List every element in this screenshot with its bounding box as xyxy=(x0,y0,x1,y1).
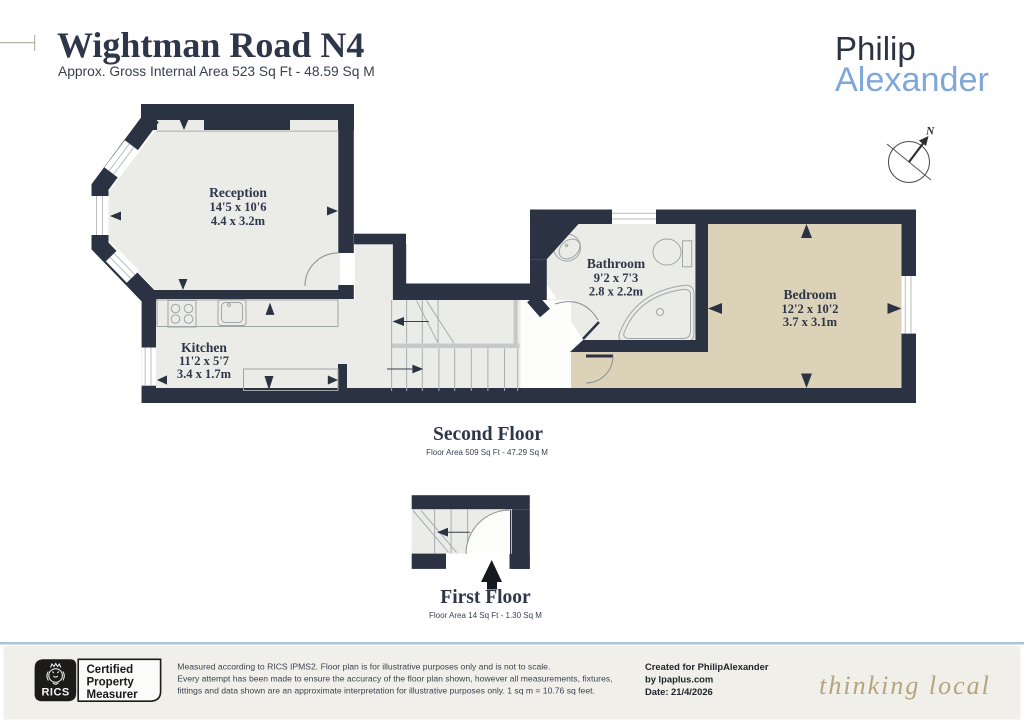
svg-text:Bedroom: Bedroom xyxy=(784,287,838,302)
svg-text:Measured according to RICS IPM: Measured according to RICS IPMS2. Floor … xyxy=(177,662,550,672)
svg-text:2.8 x 2.2m: 2.8 x 2.2m xyxy=(589,285,644,299)
svg-text:Floor Area 509 Sq Ft - 47.29 S: Floor Area 509 Sq Ft - 47.29 Sq M xyxy=(426,448,548,457)
svg-text:fittings and data shown are an: fittings and data shown are an approxima… xyxy=(177,685,595,695)
svg-text:First Floor: First Floor xyxy=(440,587,531,608)
svg-text:Every attempt has been made to: Every attempt has been made to ensure th… xyxy=(177,673,612,683)
svg-text:Wightman Road N4: Wightman Road N4 xyxy=(57,25,364,65)
svg-text:Date: 21/4/2026: Date: 21/4/2026 xyxy=(645,686,713,697)
svg-text:3.4 x 1.7m: 3.4 x 1.7m xyxy=(177,367,232,381)
svg-text:RICS: RICS xyxy=(41,687,69,699)
svg-text:14'5 x 10'6: 14'5 x 10'6 xyxy=(210,200,267,214)
svg-text:4.4 x 3.2m: 4.4 x 3.2m xyxy=(211,214,266,228)
svg-text:11'2 x 5'7: 11'2 x 5'7 xyxy=(179,354,229,368)
svg-text:Approx. Gross Internal Area 52: Approx. Gross Internal Area 523 Sq Ft - … xyxy=(58,64,375,79)
svg-text:Bathroom: Bathroom xyxy=(587,256,646,271)
svg-text:Kitchen: Kitchen xyxy=(181,340,227,355)
svg-text:Created for PhilipAlexander: Created for PhilipAlexander xyxy=(645,661,769,672)
svg-text:3.7 x 3.1m: 3.7 x 3.1m xyxy=(783,315,838,329)
svg-text:Reception: Reception xyxy=(209,185,267,200)
svg-text:9'2 x 7'3: 9'2 x 7'3 xyxy=(594,271,638,285)
svg-text:N: N xyxy=(925,126,935,138)
svg-text:Measurer: Measurer xyxy=(87,689,139,701)
svg-text:Property: Property xyxy=(87,677,135,689)
svg-text:Certified: Certified xyxy=(87,664,134,676)
svg-text:Second Floor: Second Floor xyxy=(433,424,543,445)
svg-text:Alexander: Alexander xyxy=(835,61,989,99)
svg-text:12'2 x 10'2: 12'2 x 10'2 xyxy=(782,302,839,316)
svg-text:thinking local: thinking local xyxy=(819,671,991,700)
svg-text:Floor Area 14 Sq Ft - 1.30 Sq: Floor Area 14 Sq Ft - 1.30 Sq M xyxy=(429,611,542,620)
svg-text:by lpaplus.com: by lpaplus.com xyxy=(645,674,713,685)
